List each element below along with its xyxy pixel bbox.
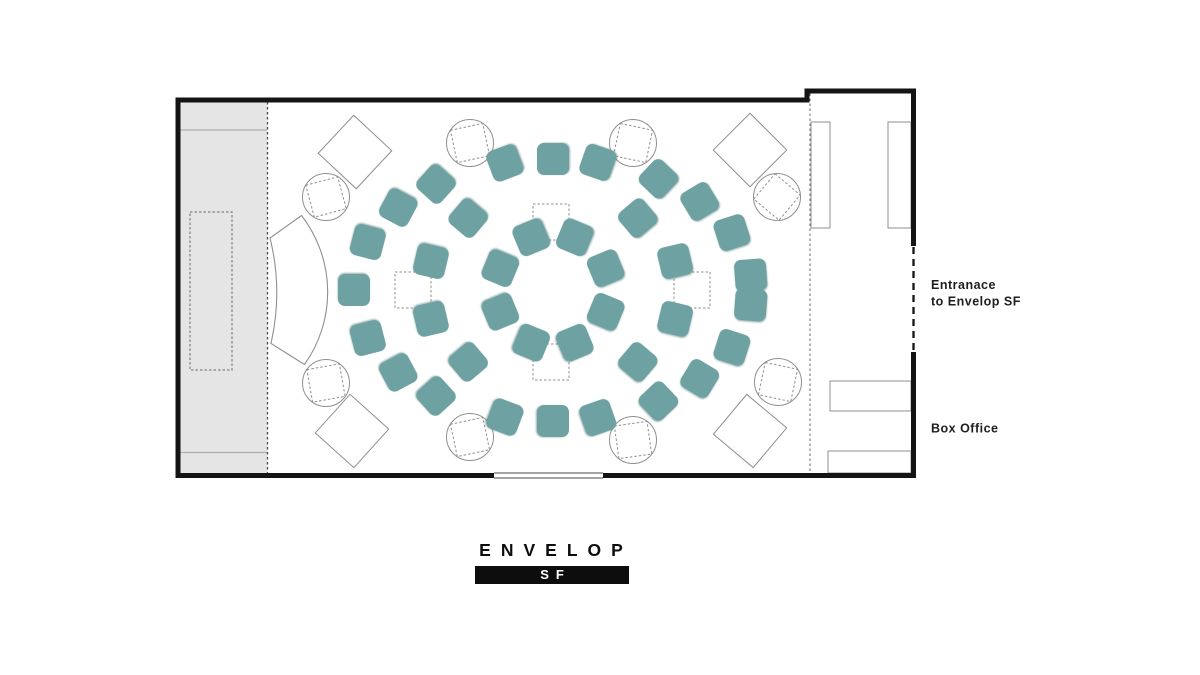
speaker-circle <box>754 174 801 221</box>
seat-outer-ring <box>348 319 387 358</box>
curved-screen <box>270 216 328 365</box>
seat-middle-ring <box>615 196 660 241</box>
seat-outer-ring <box>377 186 420 229</box>
box-office-label: Box Office <box>931 422 999 436</box>
logo-wordmark: ENVELOP <box>451 540 651 561</box>
seat-inner-ring <box>554 216 596 258</box>
seat-inner-ring <box>554 322 596 364</box>
floor-plan-page: Entranace to Envelop SF Box Office ENVEL… <box>0 0 1200 675</box>
speaker-circle <box>303 360 350 407</box>
seat-outer-ring <box>377 351 420 394</box>
logo-badge-box: SF <box>475 566 629 584</box>
stage-area <box>181 102 268 473</box>
speaker-circle <box>303 174 350 221</box>
entrance-label-line1: Entranace <box>931 278 996 292</box>
subwoofer-dashed-square <box>674 272 710 308</box>
seat-layer <box>338 142 768 438</box>
seat-inner-ring <box>510 216 552 258</box>
seat-middle-ring <box>446 196 491 241</box>
vestibule-fixture <box>888 122 911 228</box>
seat-middle-ring <box>446 339 491 384</box>
speaker-circle <box>610 417 657 464</box>
seat-outer-ring <box>734 288 768 322</box>
seat-inner-ring <box>585 247 627 289</box>
seat-inner-ring <box>510 322 552 364</box>
subwoofer-dashed-square <box>395 272 431 308</box>
speaker-circle-outline <box>754 174 801 221</box>
seat-middle-ring <box>656 242 695 281</box>
seat-inner-ring <box>585 291 627 333</box>
logo-badge-text: SF <box>533 566 571 584</box>
stage-floor <box>181 102 268 473</box>
entrance-label-line2: to Envelop SF <box>931 295 1021 309</box>
seat-middle-ring <box>412 242 451 281</box>
seat-middle-ring <box>615 339 660 384</box>
speaker-circle-outline <box>303 174 350 221</box>
seat-outer-ring <box>413 373 458 418</box>
seat-middle-ring <box>656 300 695 339</box>
vestibule-fixture <box>828 451 911 473</box>
seat-outer-ring <box>712 212 752 252</box>
speaker-circle <box>447 120 494 167</box>
speaker-circle <box>447 414 494 461</box>
seat-outer-ring <box>712 327 752 367</box>
seat-inner-ring <box>479 247 521 289</box>
seat-outer-ring <box>413 161 458 206</box>
seat-outer-ring <box>348 223 387 262</box>
vestibule-fixture <box>830 381 911 411</box>
seat-outer-ring <box>678 357 722 401</box>
seat-outer-ring <box>678 180 722 224</box>
bottom-window-wall <box>494 471 603 480</box>
seat-outer-ring <box>537 143 569 175</box>
speaker-circle <box>610 120 657 167</box>
seat-inner-ring <box>479 291 521 333</box>
seat-outer-ring <box>636 378 681 423</box>
seat-outer-ring <box>338 274 370 306</box>
bottom-window-gap <box>494 471 603 480</box>
seat-outer-ring <box>734 258 768 292</box>
vestibule-fixture <box>811 122 830 228</box>
seat-middle-ring <box>412 300 451 339</box>
speaker-circle <box>755 359 802 406</box>
seat-outer-ring <box>537 405 569 437</box>
